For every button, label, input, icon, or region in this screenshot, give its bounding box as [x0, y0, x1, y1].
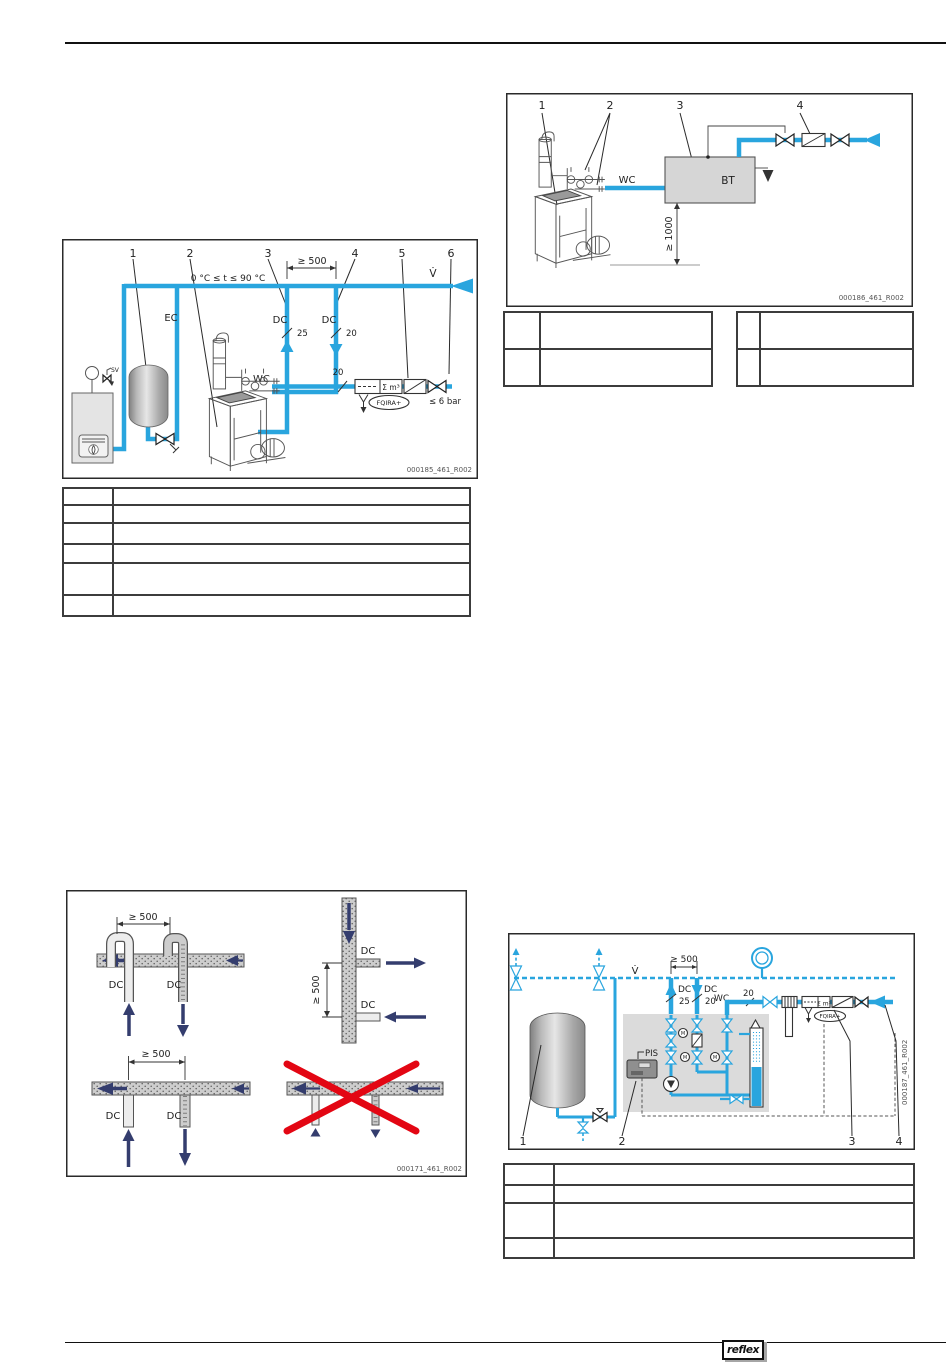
dc-left-label: DC: [678, 985, 691, 995]
wc-label: WC: [619, 175, 636, 186]
sv-label: SV: [111, 367, 120, 374]
figure-code: 000187_461_R002: [901, 1040, 909, 1105]
diagram-detail-schematic: V̇ ≥ 500 DC DC 25 20 WC 20 Σ m³: [508, 933, 915, 1150]
callout-2: 2: [187, 247, 194, 260]
dc-label: DC: [361, 1000, 376, 1011]
dim-500-label: ≥ 500: [311, 975, 322, 1004]
dc-label: DC: [106, 1111, 121, 1122]
expansion-vessel: [129, 365, 168, 427]
dn25-label: 25: [297, 329, 308, 339]
callout-4: 4: [352, 247, 359, 260]
dim-500-label: ≥ 500: [128, 912, 157, 923]
motor-label: M: [683, 1055, 687, 1061]
dim-1000-label: ≥ 1000: [664, 216, 675, 251]
header-rule: [65, 42, 946, 44]
motor-label: M: [713, 1055, 717, 1061]
meter-label: Σ m³: [382, 383, 399, 392]
burner-icon: [79, 435, 108, 457]
flow-symbol: V̇: [429, 267, 437, 280]
reflex-logo: reflex: [722, 1340, 764, 1360]
figure-code: 000171_461_R002: [397, 1165, 462, 1173]
dc-right-label: DC: [322, 315, 337, 326]
diagram-dc-connection-rules: DC DC ≥ 500 DC DC ≥ 500 DC DC: [66, 890, 467, 1177]
diagram-system-connection: 1 2 3 4 5 6 ≥ 500 0 °C ≤ t ≤ 90 °C V̇ EC…: [62, 239, 478, 479]
fqira-label: FQIRA+: [377, 399, 402, 407]
controller: [627, 1060, 657, 1078]
dim-500-label: ≥ 500: [670, 955, 698, 965]
pis-label: PIS: [645, 1049, 658, 1059]
pump-icon: [86, 367, 99, 380]
dn20-label: 20: [346, 329, 357, 339]
footer-rule: [65, 1342, 946, 1343]
motor-label: M: [681, 1031, 685, 1037]
callout-3: 3: [265, 247, 272, 260]
callout-2: 2: [619, 1135, 626, 1148]
figure-code: 000186_461_R002: [839, 294, 904, 302]
dc-label: DC: [167, 1111, 182, 1122]
callout-4: 4: [896, 1135, 903, 1148]
callout-6: 6: [448, 247, 455, 260]
meter-label: Σ m³: [817, 1001, 832, 1008]
callout-1: 1: [520, 1135, 527, 1148]
ec-label: EC: [164, 313, 177, 324]
dn20-meter-label: 20: [743, 989, 754, 999]
callout-3: 3: [677, 99, 684, 112]
diagram-break-tank: 1 2 3 4 WC BT ≥ 1000 000186_461_R002: [506, 93, 913, 307]
callout-1: 1: [539, 99, 546, 112]
dc-label: DC: [109, 980, 124, 991]
temp-range-label: 0 °C ≤ t ≤ 90 °C: [191, 274, 266, 284]
dc-label: DC: [361, 946, 376, 957]
dirt-trap-filter: [832, 997, 853, 1008]
flow-symbol: V̇: [632, 964, 639, 977]
legend-table-d4: [503, 1163, 915, 1259]
dc-left-label: DC: [273, 315, 288, 326]
dim-500-label: ≥ 500: [297, 256, 326, 267]
dim-500-label: ≥ 500: [141, 1049, 170, 1060]
legend-table-d2-right: [736, 311, 914, 387]
max-pressure-label: ≤ 6 bar: [429, 397, 462, 407]
bt-label: BT: [721, 175, 735, 187]
callout-4: 4: [797, 99, 804, 112]
callout-5: 5: [399, 247, 406, 260]
dn25-label: 25: [679, 997, 690, 1007]
callout-1: 1: [130, 247, 137, 260]
reflex-logo-text: reflex: [727, 1344, 759, 1356]
break-tank: [665, 157, 755, 203]
dc-label: DC: [167, 980, 182, 991]
legend-table-d1: [62, 487, 471, 617]
legend-table-d2-left: [503, 311, 713, 387]
callout-3: 3: [849, 1135, 856, 1148]
dn20-meter-label: 20: [333, 368, 344, 378]
callout-2: 2: [607, 99, 614, 112]
figure-code: 000185_461_R002: [407, 466, 472, 474]
